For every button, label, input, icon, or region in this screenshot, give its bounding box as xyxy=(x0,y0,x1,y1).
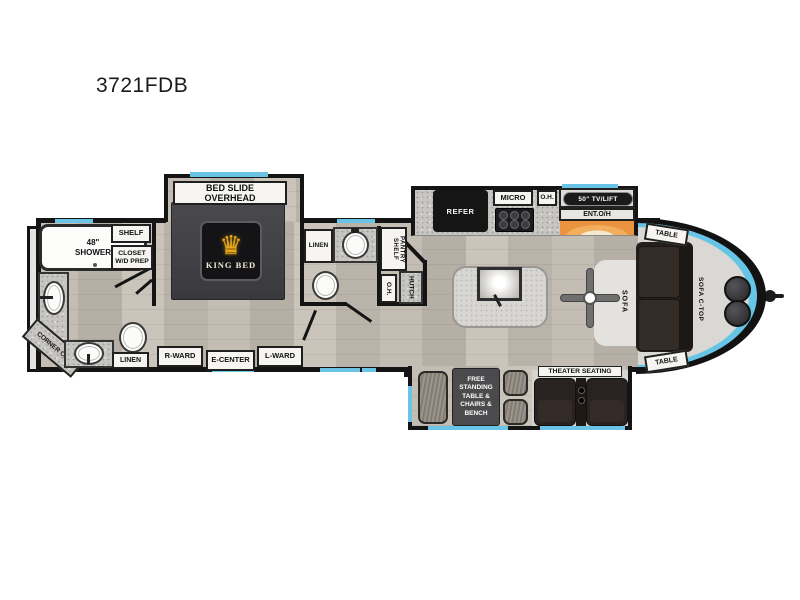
cupholder-icon xyxy=(578,387,585,394)
refrigerator: REFER xyxy=(433,190,488,232)
sofa-cushion xyxy=(638,246,680,298)
sofa-ctop-label: SOFA C-TOP xyxy=(697,266,704,332)
propane-tank-icon xyxy=(724,276,751,303)
faucet-icon xyxy=(351,228,359,233)
propane-tank-icon xyxy=(724,300,751,327)
tv-lift-pill: 50" TV/LIFT xyxy=(563,192,633,206)
sofa-backrest xyxy=(680,244,693,350)
l-ward-label: L-WARD xyxy=(257,346,303,367)
pantry-shelf-label: PANTRY SHELF xyxy=(380,227,407,271)
hutch-cabinet: HUTCH xyxy=(399,271,423,304)
fireplace xyxy=(560,221,634,235)
cupholder-icon xyxy=(578,397,585,404)
tv-lift-unit: 50" TV/LIFT xyxy=(559,188,635,208)
closet-wd-prep-label: CLOSET W/D PREP xyxy=(111,245,153,270)
l-ward-text: L-WARD xyxy=(265,352,295,360)
linen-front-text: LINEN xyxy=(120,357,141,365)
theater-seat-cushion xyxy=(590,400,624,422)
r-ward-text: R-WARD xyxy=(165,352,196,360)
window xyxy=(428,426,508,430)
sofa xyxy=(636,242,693,352)
dinette-chair xyxy=(503,370,528,396)
toilet-icon xyxy=(312,271,339,300)
kitchen-oh-text: O.H. xyxy=(540,194,553,201)
faucet-icon xyxy=(40,296,53,299)
burner-icon xyxy=(510,220,519,229)
refer-label: REFER xyxy=(447,207,475,216)
linen-mid-text: LINEN xyxy=(309,242,329,249)
ent-oh-label: ENT.O/H xyxy=(559,208,635,221)
window xyxy=(320,368,360,372)
shower-drain-icon xyxy=(93,263,97,267)
overhead-cabinet-label: O.H. xyxy=(380,274,397,303)
ceiling-fan-hub xyxy=(583,291,597,305)
linen-front-label: LINEN xyxy=(112,352,149,369)
sofa-cushion xyxy=(638,299,680,351)
pantry-shelf-text: PANTRY SHELF xyxy=(383,229,405,269)
window xyxy=(337,219,375,223)
sink-icon xyxy=(342,231,369,259)
burner-icon xyxy=(499,211,508,220)
hitch-handle xyxy=(774,294,784,298)
theater-seat xyxy=(534,378,576,426)
wall-hall-left xyxy=(300,302,346,306)
crown-icon: ♛ xyxy=(219,232,242,258)
dinette-chair xyxy=(503,399,528,425)
faucet-icon xyxy=(87,354,90,364)
micro-text: MICRO xyxy=(501,194,526,202)
ent-oh-text: ENT.O/H xyxy=(583,211,611,219)
dinette-table: FREE STANDING TABLE & CHAIRS & BENCH xyxy=(452,368,500,426)
table-front-text: TABLE xyxy=(655,229,679,240)
r-ward-label: R-WARD xyxy=(157,346,203,367)
dinette-label: FREE STANDING TABLE & CHAIRS & BENCH xyxy=(456,376,496,418)
kitchen-oh-label: O.H. xyxy=(537,190,557,206)
dinette-bench xyxy=(418,371,448,424)
burner-icon xyxy=(499,220,508,229)
sofa-label: SOFA xyxy=(620,283,628,321)
shelf-text: SHELF xyxy=(119,229,144,237)
bed-slide-text: BED SLIDE OVERHEAD xyxy=(194,183,266,203)
theater-seating-label: THEATER SEATING xyxy=(538,366,622,377)
theater-seat-cushion xyxy=(538,400,572,422)
wall-hutch xyxy=(423,260,427,306)
e-center-label: E-CENTER xyxy=(206,350,255,371)
oh-text: O.H. xyxy=(385,282,392,295)
island-sink xyxy=(477,267,522,301)
burner-icon xyxy=(521,220,530,229)
window xyxy=(55,219,93,223)
linen-mid-label: LINEN xyxy=(304,229,333,263)
toilet-icon xyxy=(119,322,147,353)
hutch-label: HUTCH xyxy=(408,276,415,299)
window xyxy=(408,386,412,422)
micro-label: MICRO xyxy=(493,190,533,206)
bed-slide-overhead-label: BED SLIDE OVERHEAD xyxy=(173,181,287,205)
cooktop xyxy=(495,208,534,232)
burner-icon xyxy=(510,211,519,220)
theater-seat xyxy=(586,378,628,426)
closet-text: CLOSET W/D PREP xyxy=(113,250,151,265)
burner-icon xyxy=(521,211,530,220)
tv-label: 50" TV/LIFT xyxy=(578,196,617,203)
shelf-label: SHELF xyxy=(111,224,151,243)
theater-text: THEATER SEATING xyxy=(548,368,611,376)
king-bed-label: KING BED xyxy=(206,260,256,270)
king-bed: ♛ KING BED xyxy=(171,202,285,300)
table-rear-text: TABLE xyxy=(655,356,679,367)
wall-entry-jog xyxy=(404,367,408,377)
theater-console xyxy=(576,378,586,426)
e-center-text: E-CENTER xyxy=(211,356,249,364)
window xyxy=(362,368,376,372)
window xyxy=(190,172,268,177)
king-bed-badge: ♛ KING BED xyxy=(200,221,262,281)
rv-floorplan: 48" SHOWER SHELF CLOSET W/D PREP CORNER … xyxy=(0,0,800,600)
window xyxy=(540,426,625,430)
